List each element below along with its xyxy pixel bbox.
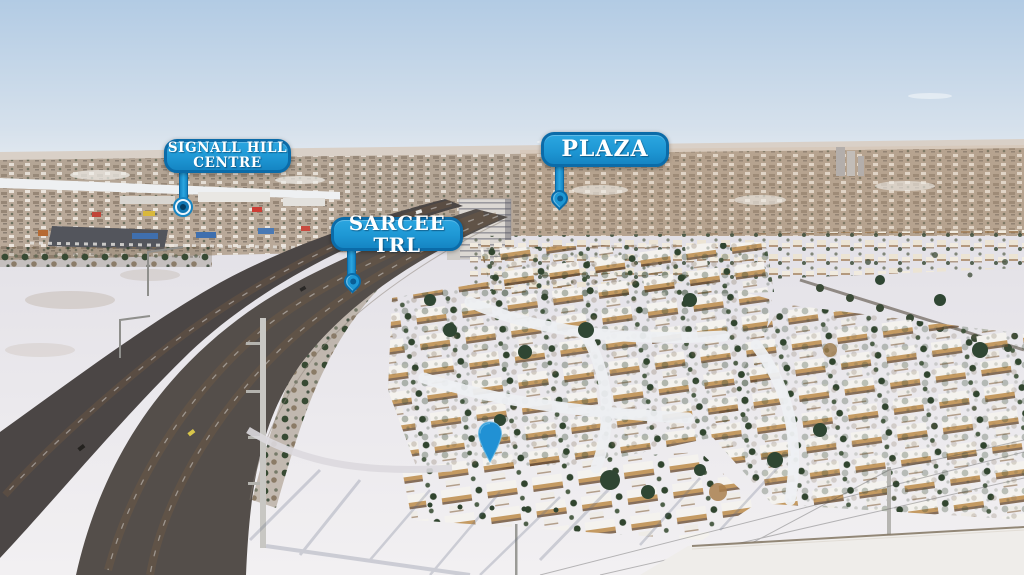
signal-hill-pin-icon xyxy=(175,199,191,215)
signal-hill-stem xyxy=(179,172,188,202)
callout-signal-hill: SIGNALL HILL CENTRE xyxy=(164,139,291,173)
plaza-label: PLAZA xyxy=(561,137,648,162)
callout-sarcee-trl: SARCEE TRL xyxy=(331,217,463,251)
signal-hill-label-line1: SIGNALL HILL xyxy=(168,141,287,156)
aerial-photo-background xyxy=(0,0,1024,575)
annotated-aerial-photo: SIGNALL HILL CENTRE PLAZA SARCEE TRL xyxy=(0,0,1024,575)
property-location-pin-icon xyxy=(477,421,503,463)
sarcee-trl-label: SARCEE TRL xyxy=(334,212,460,257)
callout-plaza: PLAZA xyxy=(541,132,669,167)
signal-hill-label-line2: CENTRE xyxy=(193,156,262,171)
